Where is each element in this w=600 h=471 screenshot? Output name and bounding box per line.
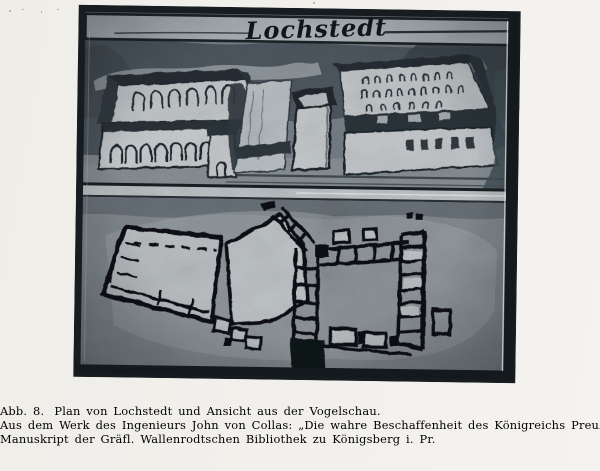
vignette: [73, 5, 520, 384]
dust-speck: [57, 9, 59, 10]
figure-label: Abb. 8.: [0, 404, 44, 418]
dust-speck: [22, 9, 24, 10]
caption-line-3: Manuskript der Gräfl. Wallenrodtschen Bi…: [0, 432, 600, 446]
dust-speck: [313, 2, 315, 4]
caption-line-2: Aus dem Werk des Ingenieurs John von Col…: [0, 418, 600, 432]
caption-title: Plan von Lochstedt und Ansicht aus der V…: [54, 404, 380, 418]
dust-speck: [9, 10, 11, 12]
caption-line-1: Abb. 8.Plan von Lochstedt und Ansicht au…: [0, 404, 600, 418]
plate-figure: Lochstedt: [73, 5, 520, 384]
plate-svg: Lochstedt: [73, 5, 520, 384]
dust-speck: [41, 11, 42, 13]
book-page: Lochstedt: [0, 0, 600, 471]
